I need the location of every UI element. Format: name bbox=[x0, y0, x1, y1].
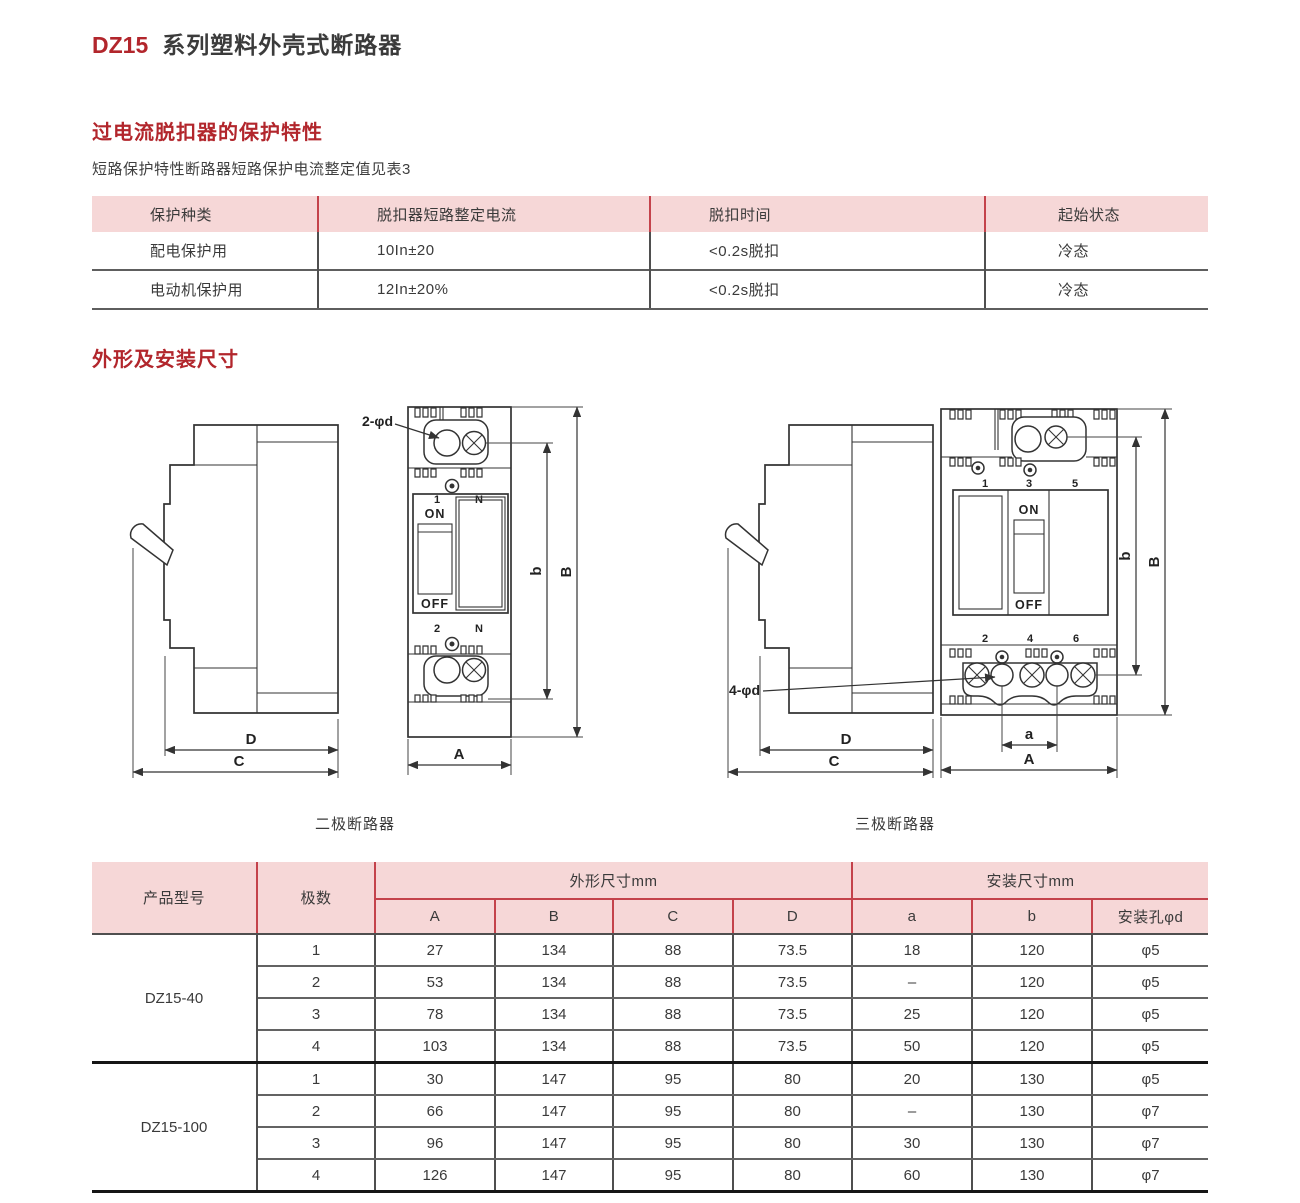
dim-label-A: A bbox=[1024, 751, 1035, 768]
dim-label-C: C bbox=[234, 753, 245, 770]
dim-label-D: D bbox=[246, 731, 257, 748]
cell: 80 bbox=[733, 1159, 852, 1192]
breaker-handle bbox=[726, 524, 768, 565]
cell: 73.5 bbox=[733, 998, 852, 1030]
terminal-label: 2 bbox=[434, 623, 440, 635]
cell: 134 bbox=[495, 934, 613, 966]
cell: 147 bbox=[495, 1063, 613, 1096]
dimensions-section-heading: 外形及安装尺寸 bbox=[92, 343, 239, 372]
off-label: OFF bbox=[1015, 598, 1043, 612]
cell: 2 bbox=[257, 1095, 375, 1127]
cell: 12In±20% bbox=[318, 270, 650, 309]
title-text: 系列塑料外壳式断路器 bbox=[162, 32, 402, 58]
terminal-label: 1 bbox=[434, 494, 440, 506]
three-pole-caption: 三极断路器 bbox=[855, 813, 935, 834]
group-header-row: 产品型号 极数 外形尺寸mm 安装尺寸mm bbox=[92, 862, 1208, 899]
cell: 95 bbox=[613, 1095, 733, 1127]
cell: 147 bbox=[495, 1127, 613, 1159]
cell: 95 bbox=[613, 1159, 733, 1192]
cell: 18 bbox=[852, 934, 972, 966]
terminal-label: 6 bbox=[1073, 633, 1079, 645]
cell: 120 bbox=[972, 934, 1092, 966]
cell: 1 bbox=[257, 934, 375, 966]
table-row: 4126147958060130φ7 bbox=[92, 1159, 1208, 1192]
cell: 66 bbox=[375, 1095, 495, 1127]
table-row: DZ15-100 130147958020130φ5 bbox=[92, 1063, 1208, 1096]
two-pole-caption: 二极断路器 bbox=[315, 813, 395, 834]
cell: <0.2s脱扣 bbox=[650, 270, 985, 309]
cell: 4 bbox=[257, 1030, 375, 1063]
header-cell: 安装孔φd bbox=[1092, 899, 1208, 934]
header-cell: D bbox=[733, 899, 852, 934]
cell: 120 bbox=[972, 1030, 1092, 1063]
cell: – bbox=[852, 1095, 972, 1127]
cell: 147 bbox=[495, 1095, 613, 1127]
poles-header: 极数 bbox=[257, 862, 375, 934]
mounting-hole bbox=[991, 664, 1013, 686]
protection-header-row: 保护种类 脱扣器短路整定电流 脱扣时间 起始状态 bbox=[92, 196, 1208, 232]
terminal-label: 1 bbox=[982, 478, 988, 490]
protection-table-container: 保护种类 脱扣器短路整定电流 脱扣时间 起始状态 配电保护用 10In±20 <… bbox=[92, 196, 1208, 310]
cell: 25 bbox=[852, 998, 972, 1030]
cell: 120 bbox=[972, 966, 1092, 998]
cell: φ7 bbox=[1092, 1159, 1208, 1192]
dim-label-B: B bbox=[1146, 556, 1163, 567]
cell: – bbox=[852, 966, 972, 998]
dim-label-C: C bbox=[829, 753, 840, 770]
cell: 4 bbox=[257, 1159, 375, 1192]
cell: 30 bbox=[852, 1127, 972, 1159]
cell: 134 bbox=[495, 1030, 613, 1063]
dim-label-a: a bbox=[1025, 726, 1034, 743]
cell: φ5 bbox=[1092, 934, 1208, 966]
header-cell: 起始状态 bbox=[985, 196, 1208, 232]
cell: 10In±20 bbox=[318, 232, 650, 270]
dim-label-A: A bbox=[454, 746, 465, 763]
outline-group-header: 外形尺寸mm bbox=[375, 862, 852, 899]
model-code: DZ15 bbox=[92, 32, 148, 58]
cell: 80 bbox=[733, 1127, 852, 1159]
datasheet-page: { "page": { "title_model": "DZ15", "titl… bbox=[0, 0, 1300, 1203]
header-cell: a bbox=[852, 899, 972, 934]
cell: 1 bbox=[257, 1063, 375, 1096]
protection-note: 短路保护特性断路器短路保护电流整定值见表3 bbox=[92, 158, 411, 179]
header-cell: 脱扣时间 bbox=[650, 196, 985, 232]
mounting-group-header: 安装尺寸mm bbox=[852, 862, 1208, 899]
dimension-A: A bbox=[408, 739, 511, 775]
cell: 80 bbox=[733, 1063, 852, 1096]
page-title: DZ15系列塑料外壳式断路器 bbox=[92, 26, 402, 60]
cell: 20 bbox=[852, 1063, 972, 1096]
cell: 88 bbox=[613, 934, 733, 966]
dim-label-D: D bbox=[841, 731, 852, 748]
terminal-label: 4 bbox=[1027, 633, 1034, 645]
terminal-label: 3 bbox=[1026, 478, 1032, 490]
header-cell: b bbox=[972, 899, 1092, 934]
cell: 53 bbox=[375, 966, 495, 998]
cell: 95 bbox=[613, 1063, 733, 1096]
toggle-rocker bbox=[418, 524, 452, 594]
table-row: DZ15-40 1271348873.518120φ5 bbox=[92, 934, 1208, 966]
cell: 3 bbox=[257, 1127, 375, 1159]
cell: <0.2s脱扣 bbox=[650, 232, 985, 270]
header-cell: A bbox=[375, 899, 495, 934]
dim-label-B: B bbox=[558, 566, 575, 577]
hole-callout: 4-φd bbox=[729, 677, 995, 698]
cell: φ5 bbox=[1092, 1030, 1208, 1063]
terminal-label: 2 bbox=[982, 633, 988, 645]
header-cell: C bbox=[613, 899, 733, 934]
dimensions-table: 产品型号 极数 外形尺寸mm 安装尺寸mm A B C D a b 安装孔φd … bbox=[92, 862, 1208, 1193]
product-header: 产品型号 bbox=[92, 862, 257, 934]
toggle-rocker bbox=[1014, 520, 1044, 593]
cell: 电动机保护用 bbox=[92, 270, 318, 309]
cell: 88 bbox=[613, 966, 733, 998]
cell: 126 bbox=[375, 1159, 495, 1192]
breaker-handle bbox=[131, 524, 173, 565]
dimension-b: b bbox=[486, 443, 553, 699]
table-row: 2531348873.5–120φ5 bbox=[92, 966, 1208, 998]
header-cell: 保护种类 bbox=[92, 196, 318, 232]
table-row: 配电保护用 10In±20 <0.2s脱扣 冷态 bbox=[92, 232, 1208, 270]
cell: 78 bbox=[375, 998, 495, 1030]
front-view: 1 3 5 ON OFF 2 4 6 bbox=[941, 409, 1117, 715]
off-label: OFF bbox=[421, 597, 449, 611]
table-row: 396147958030130φ7 bbox=[92, 1127, 1208, 1159]
cell: 120 bbox=[972, 998, 1092, 1030]
cell: 130 bbox=[972, 1063, 1092, 1096]
mounting-hole bbox=[434, 430, 460, 456]
cell: 73.5 bbox=[733, 1030, 852, 1063]
cell: 88 bbox=[613, 1030, 733, 1063]
cell: 80 bbox=[733, 1095, 852, 1127]
protection-section-heading: 过电流脱扣器的保护特性 bbox=[92, 116, 323, 145]
cell: 73.5 bbox=[733, 934, 852, 966]
terminal-label: N bbox=[475, 623, 483, 635]
cell: 60 bbox=[852, 1159, 972, 1192]
cover-window bbox=[456, 497, 505, 610]
mounting-hole bbox=[1015, 426, 1041, 452]
side-view bbox=[131, 425, 338, 713]
cover-window bbox=[959, 496, 1002, 609]
cell: 130 bbox=[972, 1095, 1092, 1127]
cell: 配电保护用 bbox=[92, 232, 318, 270]
on-label: ON bbox=[1019, 503, 1040, 517]
cell: φ7 bbox=[1092, 1095, 1208, 1127]
cell: 27 bbox=[375, 934, 495, 966]
cell: 134 bbox=[495, 998, 613, 1030]
cell: 103 bbox=[375, 1030, 495, 1063]
terminal-label: 5 bbox=[1072, 478, 1078, 490]
mounting-hole bbox=[434, 657, 460, 683]
dim-label-b: b bbox=[1117, 551, 1134, 560]
cell: 73.5 bbox=[733, 966, 852, 998]
cell: 96 bbox=[375, 1127, 495, 1159]
cell: 134 bbox=[495, 966, 613, 998]
dimension-D: D bbox=[760, 656, 933, 778]
table-row: 41031348873.550120φ5 bbox=[92, 1030, 1208, 1063]
hole-label: 4-φd bbox=[729, 682, 760, 698]
dimensions-table-container: 产品型号 极数 外形尺寸mm 安装尺寸mm A B C D a b 安装孔φd … bbox=[92, 862, 1208, 1193]
on-label: ON bbox=[425, 507, 446, 521]
cell: 130 bbox=[972, 1127, 1092, 1159]
model-cell: DZ15-100 bbox=[92, 1063, 257, 1192]
cell: φ5 bbox=[1092, 998, 1208, 1030]
cell: 95 bbox=[613, 1127, 733, 1159]
cell: φ5 bbox=[1092, 1063, 1208, 1096]
cell: 冷态 bbox=[985, 270, 1208, 309]
cell: 2 bbox=[257, 966, 375, 998]
header-cell: B bbox=[495, 899, 613, 934]
header-cell: 脱扣器短路整定电流 bbox=[318, 196, 650, 232]
table-row: 电动机保护用 12In±20% <0.2s脱扣 冷态 bbox=[92, 270, 1208, 309]
cell: 冷态 bbox=[985, 232, 1208, 270]
cell: φ7 bbox=[1092, 1127, 1208, 1159]
dimension-D: D bbox=[165, 656, 338, 778]
side-view bbox=[726, 425, 933, 713]
cell: 130 bbox=[972, 1159, 1092, 1192]
three-pole-drawing: D C 1 3 5 ON bbox=[700, 394, 1220, 814]
cell: φ5 bbox=[1092, 966, 1208, 998]
front-view: 1 N ON OFF 2 N bbox=[408, 407, 511, 737]
cell: 3 bbox=[257, 998, 375, 1030]
protection-table: 保护种类 脱扣器短路整定电流 脱扣时间 起始状态 配电保护用 10In±20 <… bbox=[92, 196, 1208, 310]
table-row: 2661479580–130φ7 bbox=[92, 1095, 1208, 1127]
cell: 88 bbox=[613, 998, 733, 1030]
table-row: 3781348873.525120φ5 bbox=[92, 998, 1208, 1030]
model-cell: DZ15-40 bbox=[92, 934, 257, 1063]
two-pole-drawing: D C 1 N ON OFF bbox=[105, 394, 665, 814]
dimension-B: B bbox=[1117, 409, 1172, 715]
cell: 50 bbox=[852, 1030, 972, 1063]
mounting-hole bbox=[1046, 664, 1068, 686]
hole-label: 2-φd bbox=[362, 413, 393, 429]
cell: 30 bbox=[375, 1063, 495, 1096]
cell: 147 bbox=[495, 1159, 613, 1192]
dim-label-b: b bbox=[528, 566, 545, 575]
